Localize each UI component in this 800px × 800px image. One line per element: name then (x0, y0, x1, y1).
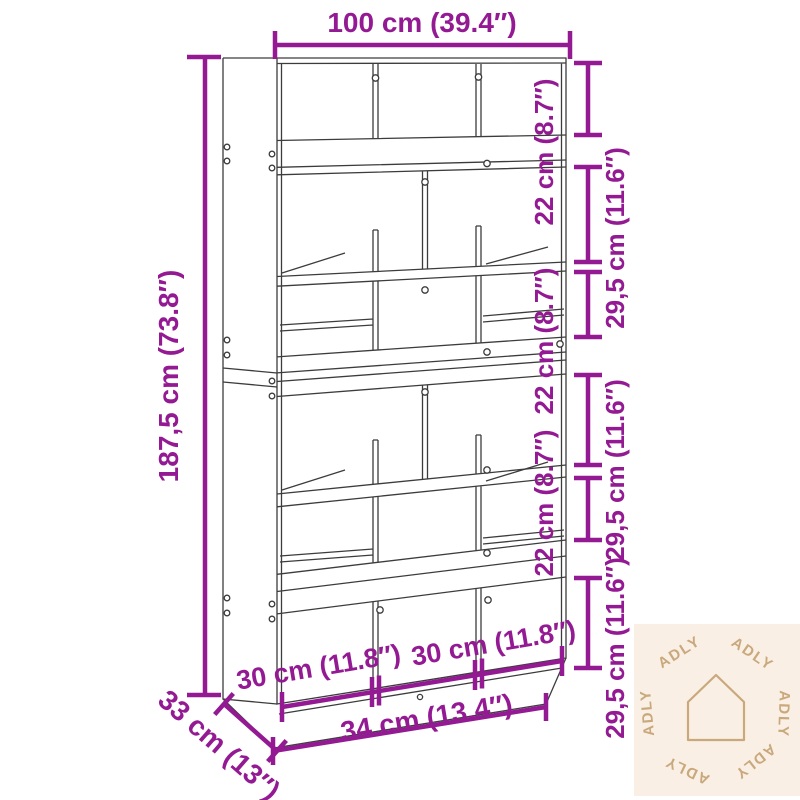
dimension-label-top-width: 100 cm (39.4″) (327, 7, 516, 38)
dimension-left-height (187, 57, 221, 695)
divider (280, 276, 564, 351)
divider (282, 385, 548, 490)
watermark-brand: ADLY (774, 690, 793, 738)
dimension-label-shelf-29: 29,5 cm (11.6″) (600, 379, 630, 561)
watermark-background (634, 624, 800, 796)
dimension-label-shelf-22: 22 cm (8.7″) (529, 430, 559, 577)
dimension-label-shelf-22: 22 cm (8.7″) (529, 79, 559, 226)
side-panel (223, 58, 277, 748)
dimension-label-left-height: 187,5 cm (73.8″) (153, 270, 184, 483)
divider (373, 64, 481, 139)
shelf-band (277, 262, 566, 286)
front-face (277, 58, 566, 704)
dimension-label-shelf-22: 22 cm (8.7″) (529, 268, 559, 415)
shelf-band (277, 337, 566, 397)
dimension-diagram: ADLY ADLY ADLY ADLY ADLY ADLY (0, 0, 800, 800)
shelf-band (277, 135, 566, 175)
shelf-band (277, 540, 566, 614)
junction-lines (223, 368, 277, 387)
dimension-right-chain (574, 63, 602, 668)
dimension-label-base-width: 34 cm (13.4″) (338, 688, 514, 747)
dimension-label-shelf-29: 29,5 cm (11.6″) (600, 557, 630, 739)
watermark: ADLY ADLY ADLY ADLY ADLY ADLY (634, 624, 800, 796)
divider (282, 171, 548, 273)
shelf-band (277, 465, 566, 507)
panel-inner-edges (277, 63, 566, 703)
dimension-label-shelf-29: 29,5 cm (11.6″) (600, 147, 630, 329)
divider (280, 487, 564, 563)
diagram-canvas: ADLY ADLY ADLY ADLY ADLY ADLY (0, 0, 800, 800)
